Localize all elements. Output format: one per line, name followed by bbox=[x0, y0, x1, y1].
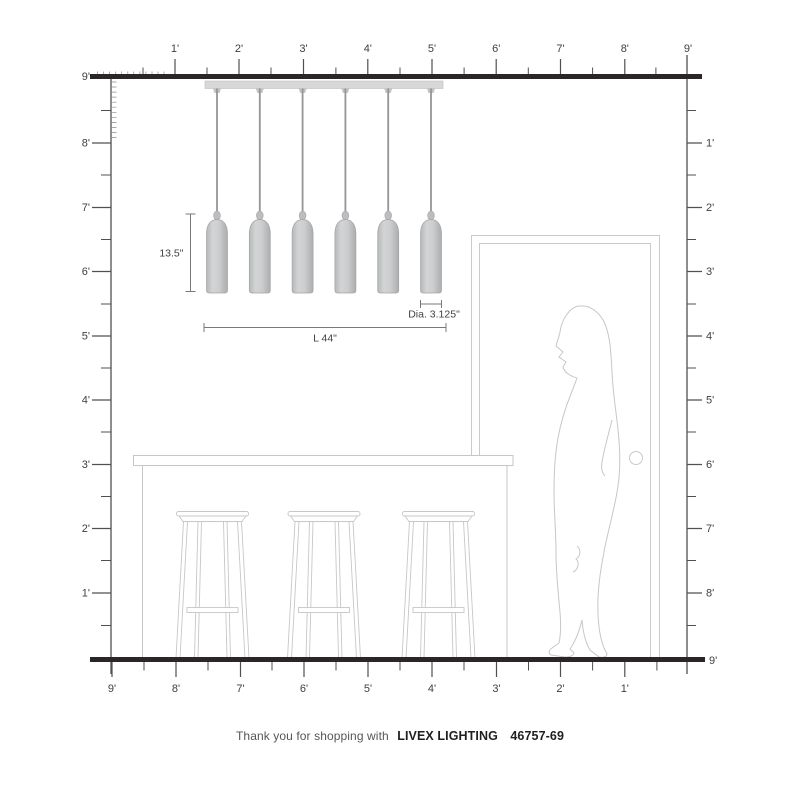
top-ruler-label: 9' bbox=[684, 43, 692, 55]
scene-svg: 1' 2' 3' 4' 5' 6' 7' 8' 9' 9' 8' 7' 6' 5… bbox=[0, 0, 800, 720]
length-dimension-line bbox=[204, 323, 446, 332]
bottom-ruler-label: 6' bbox=[300, 683, 308, 695]
height-dimension-line bbox=[186, 214, 196, 292]
right-ruler-label: 6' bbox=[706, 459, 714, 471]
bottom-ruler-label: 2' bbox=[556, 683, 564, 695]
ceiling-line bbox=[90, 74, 702, 79]
pendant-4 bbox=[335, 89, 356, 294]
top-ruler-label: 8' bbox=[621, 43, 629, 55]
height-dimension bbox=[186, 214, 196, 292]
left-ruler-label: 1' bbox=[82, 588, 90, 600]
island-countertop bbox=[134, 456, 514, 466]
left-ruler-label: 4' bbox=[82, 395, 90, 407]
right-ruler-label: 8' bbox=[706, 588, 714, 600]
left-ruler-label: 8' bbox=[82, 138, 90, 150]
top-ruler-label: 3' bbox=[299, 43, 307, 55]
left-ruler-label: 6' bbox=[82, 266, 90, 278]
left-ruler-label: 3' bbox=[82, 459, 90, 471]
left-ruler-label: 7' bbox=[82, 202, 90, 214]
height-dimension-label: 13.5" bbox=[159, 248, 183, 260]
footer-brand: LIVEX LIGHTING bbox=[397, 729, 498, 743]
diameter-dimension-label: Dia. 3.125" bbox=[408, 309, 460, 321]
right-ruler bbox=[687, 55, 702, 674]
top-ruler bbox=[98, 59, 656, 76]
right-ruler-label: 3' bbox=[706, 266, 714, 278]
top-ruler-label: 4' bbox=[364, 43, 372, 55]
top-ruler-label: 7' bbox=[556, 43, 564, 55]
right-ruler-label: 7' bbox=[706, 523, 714, 535]
right-ruler-label: 4' bbox=[706, 331, 714, 343]
footer-text: Thank you for shopping with LIVEX LIGHTI… bbox=[0, 729, 800, 743]
right-ruler-minor-ticks bbox=[687, 111, 696, 626]
product-dimension-diagram: 1' 2' 3' 4' 5' 6' 7' 8' 9' 9' 8' 7' 6' 5… bbox=[0, 0, 800, 800]
door-knob bbox=[630, 452, 643, 465]
top-ruler-label: 5' bbox=[428, 43, 436, 55]
bottom-ruler-label: 7' bbox=[236, 683, 244, 695]
canopy-bar bbox=[205, 81, 443, 89]
left-ruler-minor-ticks bbox=[101, 111, 111, 626]
right-ruler-label: 9' bbox=[709, 655, 717, 667]
bottom-ruler-label: 8' bbox=[172, 683, 180, 695]
bottom-ruler-label: 4' bbox=[428, 683, 436, 695]
bottom-ruler-label: 1' bbox=[621, 683, 629, 695]
footer-model-number: 46757-69 bbox=[510, 729, 564, 743]
length-dimension bbox=[204, 323, 446, 332]
bottom-ruler-label: 5' bbox=[364, 683, 372, 695]
pendant-3 bbox=[292, 89, 313, 294]
left-ruler-label: 2' bbox=[82, 523, 90, 535]
bottom-ruler bbox=[112, 662, 657, 677]
bottom-ruler-minor-ticks bbox=[144, 662, 657, 671]
left-ruler-labels: 9' 8' 7' 6' 5' 4' 3' 2' 1' bbox=[82, 71, 90, 600]
right-ruler-label: 5' bbox=[706, 395, 714, 407]
pendant-5 bbox=[378, 89, 399, 294]
left-ruler-label: 5' bbox=[82, 331, 90, 343]
pendant-1 bbox=[207, 89, 228, 294]
pendant-2 bbox=[249, 89, 270, 294]
bottom-ruler-major-ticks bbox=[112, 662, 625, 677]
left-ruler bbox=[92, 74, 117, 674]
pendant-fixture bbox=[205, 81, 443, 293]
bottom-ruler-label: 9' bbox=[108, 683, 116, 695]
diameter-dimension bbox=[421, 300, 442, 308]
bottom-ruler-labels: 9' 8' 7' 6' 5' 4' 3' 2' 1' bbox=[108, 683, 629, 695]
left-ruler-label: 9' bbox=[82, 71, 90, 83]
top-ruler-label: 6' bbox=[492, 43, 500, 55]
right-ruler-labels: 1' 2' 3' 4' 5' 6' 7' 8' 9' bbox=[706, 138, 717, 668]
top-ruler-labels: 1' 2' 3' 4' 5' 6' 7' 8' 9' bbox=[171, 43, 692, 55]
right-ruler-label: 2' bbox=[706, 202, 714, 214]
top-ruler-label: 2' bbox=[235, 43, 243, 55]
right-ruler-label: 1' bbox=[706, 138, 714, 150]
floor-line bbox=[90, 657, 705, 662]
footer-prefix: Thank you for shopping with bbox=[236, 729, 389, 743]
length-dimension-label: L 44" bbox=[313, 333, 337, 345]
left-ruler-inch-ticks bbox=[111, 82, 117, 138]
diameter-dimension-line bbox=[421, 300, 442, 308]
top-ruler-label: 1' bbox=[171, 43, 179, 55]
bottom-ruler-label: 3' bbox=[492, 683, 500, 695]
pendant-6 bbox=[421, 89, 442, 294]
